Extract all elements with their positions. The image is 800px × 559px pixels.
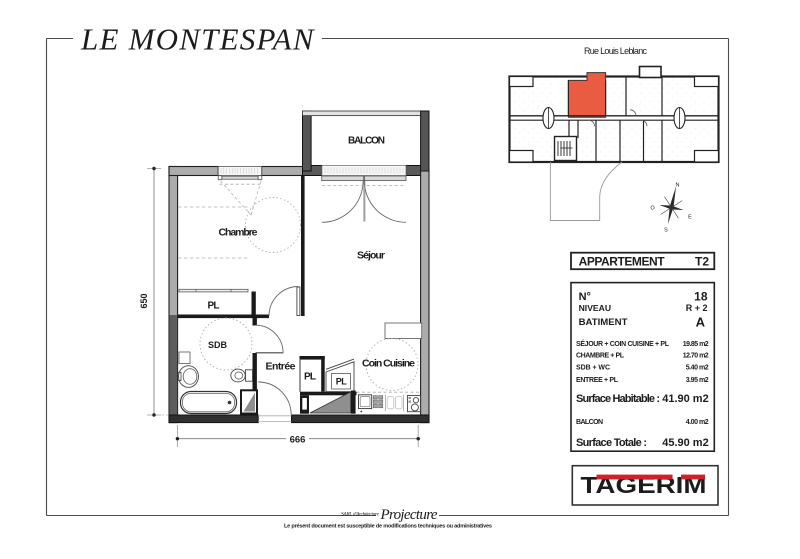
svg-text:4.00 m2: 4.00 m2: [686, 419, 709, 426]
svg-text:SDB + WC: SDB + WC: [576, 365, 610, 372]
svg-text:Entrée: Entrée: [266, 361, 296, 373]
svg-text:666: 666: [290, 434, 306, 445]
svg-text:41.90 m2: 41.90 m2: [662, 393, 708, 405]
svg-text:N°: N°: [579, 291, 591, 303]
svg-text:650: 650: [139, 293, 149, 308]
svg-text:LE MONTESPAN: LE MONTESPAN: [80, 22, 316, 57]
svg-text:5.40 m2: 5.40 m2: [686, 365, 709, 372]
svg-text:O: O: [650, 206, 655, 212]
svg-text:SÉJOUR + COIN CUISINE + PL: SÉJOUR + COIN CUISINE + PL: [576, 339, 670, 348]
svg-text:12.70 m2: 12.70 m2: [683, 353, 709, 360]
svg-text:BATIMENT: BATIMENT: [579, 317, 628, 328]
svg-text:CHAMBRE + PL: CHAMBRE + PL: [576, 353, 625, 360]
svg-text:ENTREE + PL: ENTREE + PL: [576, 377, 619, 384]
svg-text:18: 18: [694, 290, 708, 304]
svg-text:PL: PL: [304, 372, 316, 383]
svg-text:Chambre: Chambre: [219, 227, 258, 239]
svg-text:APPARTEMENT: APPARTEMENT: [579, 255, 666, 269]
svg-text:PL: PL: [336, 377, 348, 387]
svg-text:SDB: SDB: [208, 340, 228, 350]
svg-text:T2: T2: [695, 255, 709, 269]
svg-text:Coin Cuisine: Coin Cuisine: [362, 358, 415, 370]
svg-text:S: S: [664, 228, 668, 234]
svg-text:BALCON: BALCON: [348, 136, 385, 147]
svg-text:3.95 m2: 3.95 m2: [686, 377, 709, 384]
svg-text:19.85 m2: 19.85 m2: [683, 341, 709, 348]
svg-text:Surface Totale :: Surface Totale :: [576, 437, 647, 449]
svg-text:SARL d'Architecture: SARL d'Architecture: [341, 512, 380, 518]
svg-text:BALCON: BALCON: [576, 419, 603, 426]
svg-text:Surface Habitable :: Surface Habitable :: [576, 393, 660, 405]
svg-text:Séjour: Séjour: [357, 250, 385, 262]
svg-text:Le présent document est suscep: Le présent document est susceptible de m…: [284, 524, 492, 530]
svg-text:NIVEAU: NIVEAU: [579, 303, 611, 313]
svg-text:R + 2: R + 2: [686, 303, 708, 313]
svg-text:A: A: [696, 315, 706, 330]
svg-text:N: N: [676, 183, 680, 189]
svg-text:45.90 m2: 45.90 m2: [662, 437, 708, 449]
svg-text:Projecture: Projecture: [380, 507, 438, 523]
svg-text:PL: PL: [208, 301, 220, 312]
svg-text:E: E: [688, 215, 692, 221]
svg-text:Rue Louis Leblanc: Rue Louis Leblanc: [584, 46, 648, 56]
